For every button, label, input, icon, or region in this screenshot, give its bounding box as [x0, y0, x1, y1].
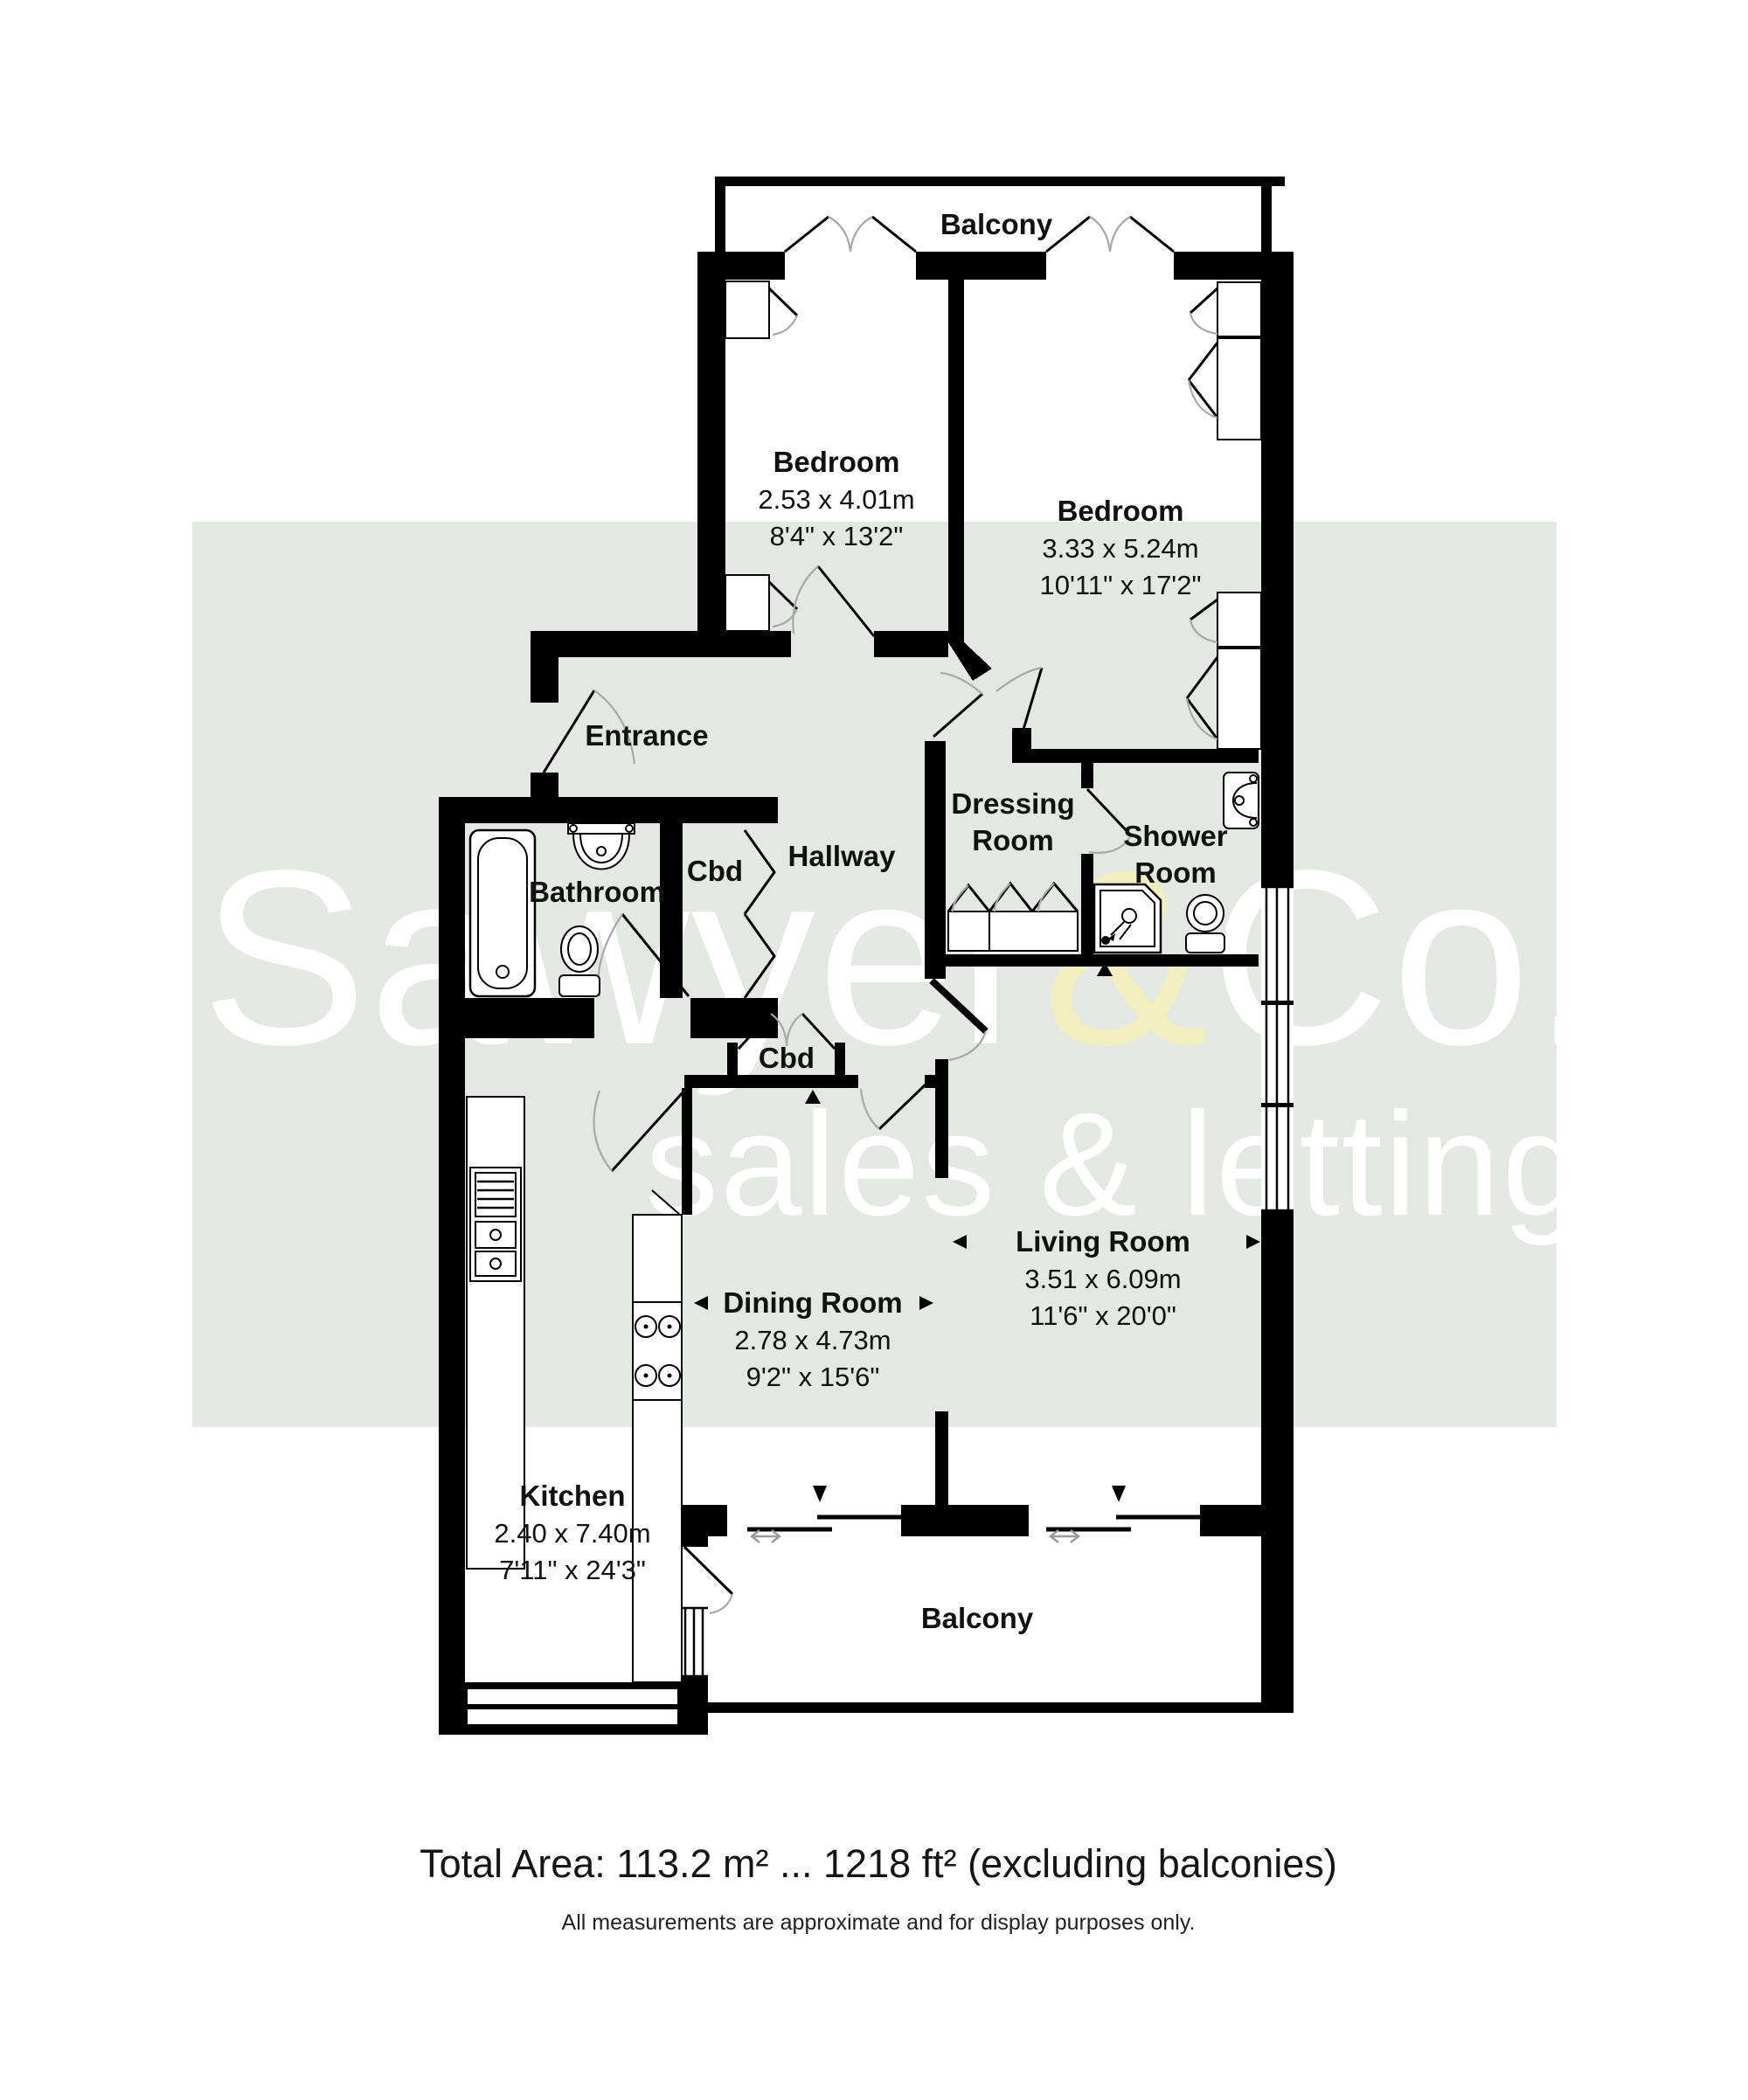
label-hallway: Hallway — [788, 840, 897, 872]
label-bedroom1-imperial: 8'4" x 13'2" — [770, 521, 904, 551]
slide-marker-down-icon — [1112, 1486, 1126, 1502]
watermark-brand: Sawyer&Co. — [201, 819, 1603, 1098]
bedroom2-balcony-door — [1046, 217, 1174, 252]
total-area-text: Total Area: 113.2 m² ... 1218 ft² (exclu… — [420, 1841, 1337, 1886]
label-dressing-2: Room — [972, 824, 1054, 856]
bathroom-toilet — [559, 926, 600, 996]
kitchen-counter-right — [633, 1190, 682, 1682]
label-kitchen: Kitchen — [519, 1480, 625, 1512]
label-living-metric: 3.51 x 6.09m — [1024, 1264, 1181, 1294]
floorplan-drawing: Sawyer&Co. sales & lettings — [0, 0, 1748, 2100]
label-dining-metric: 2.78 x 4.73m — [734, 1325, 891, 1355]
label-living-imperial: 11'6" x 20'0" — [1030, 1300, 1176, 1331]
disclaimer-text: All measurements are approximate and for… — [562, 1910, 1196, 1935]
living-room-window — [1261, 887, 1294, 1210]
label-balcony-bottom: Balcony — [921, 1602, 1034, 1634]
sliding-door-left — [747, 1486, 901, 1542]
balcony-top-wall — [715, 177, 1285, 186]
bathtub — [470, 830, 535, 996]
label-balcony-top: Balcony — [940, 208, 1053, 240]
slide-arrow-icon — [752, 1530, 780, 1542]
label-bedroom2-metric: 3.33 x 5.24m — [1042, 533, 1198, 564]
shower-drain — [1101, 936, 1110, 945]
label-kitchen-imperial: 7'11" x 24'3" — [499, 1555, 646, 1585]
shower-sink — [1224, 773, 1259, 828]
bedroom1-balcony-door — [785, 217, 916, 252]
label-dining-imperial: 9'2" x 15'6" — [746, 1362, 880, 1392]
label-shower-1: Shower — [1123, 820, 1227, 852]
label-bedroom1: Bedroom — [773, 446, 900, 478]
label-dining: Dining Room — [723, 1286, 902, 1319]
watermark-brand-name: Sawyer — [201, 819, 1042, 1098]
label-dressing-1: Dressing — [951, 787, 1074, 820]
shower-toilet — [1186, 895, 1224, 953]
kitchen-window — [680, 1608, 708, 1676]
kitchen-counter-left — [467, 1097, 524, 1569]
balcony-top-left-wall — [715, 177, 725, 255]
bedroom1-cupboard-top — [725, 281, 769, 338]
label-cbd1: Cbd — [687, 855, 743, 887]
floorplan-page: Sawyer&Co. sales & lettings — [0, 0, 1748, 2100]
bedroom1-cupboard-bottom — [725, 575, 769, 631]
label-kitchen-metric: 2.40 x 7.40m — [494, 1518, 650, 1549]
label-cbd2: Cbd — [759, 1042, 815, 1074]
watermark-tagline: sales & lettings — [645, 1082, 1661, 1246]
kitchen-balcony-door — [684, 1547, 732, 1613]
label-entrance: Entrance — [585, 719, 708, 752]
label-bedroom1-metric: 2.53 x 4.01m — [758, 484, 914, 515]
slide-marker-down-icon — [813, 1486, 827, 1502]
label-bathroom: Bathroom — [529, 876, 665, 908]
label-living: Living Room — [1016, 1225, 1190, 1258]
label-shower-2: Room — [1134, 856, 1217, 889]
label-bedroom2: Bedroom — [1058, 495, 1184, 527]
sliding-door-right — [1046, 1486, 1200, 1542]
slide-arrow-icon — [1051, 1530, 1079, 1542]
label-bedroom2-imperial: 10'11" x 17'2" — [1040, 570, 1202, 600]
shower-enclosure — [1094, 884, 1161, 953]
balcony-top-right-wall — [1261, 177, 1272, 255]
